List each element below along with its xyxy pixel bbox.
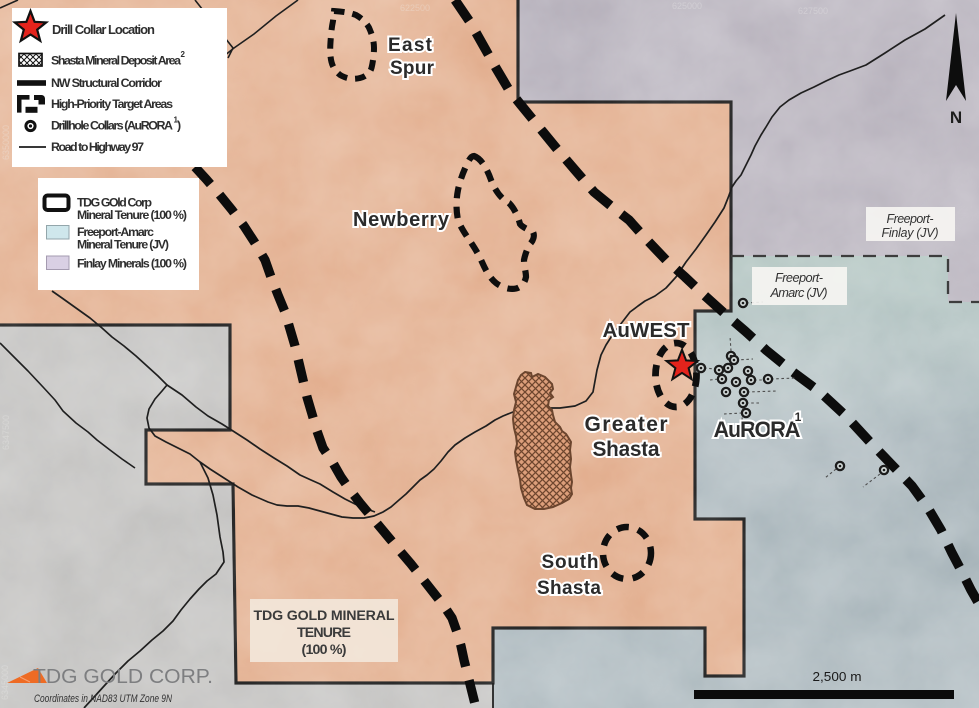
svg-text:Freeport-: Freeport-: [887, 212, 934, 226]
svg-text:Mineral Tenure (JV): Mineral Tenure (JV): [77, 238, 169, 252]
svg-text:2: 2: [181, 50, 186, 59]
svg-text:AuRORA: AuRORA: [714, 417, 801, 442]
svg-text:Finlay Minerals (100 %): Finlay Minerals (100 %): [77, 257, 187, 271]
svg-text:AuWEST: AuWEST: [603, 319, 690, 342]
svg-text:Mineral Tenure (100 %): Mineral Tenure (100 %): [77, 208, 187, 222]
svg-text:): ): [177, 119, 181, 133]
svg-text:6347500: 6347500: [1, 415, 11, 450]
svg-text:2,500 m: 2,500 m: [813, 670, 862, 684]
svg-text:6350000: 6350000: [1, 125, 11, 160]
svg-text:1: 1: [795, 410, 802, 424]
svg-text:627500: 627500: [798, 6, 828, 16]
svg-text:Greater: Greater: [585, 413, 668, 436]
svg-text:South: South: [542, 552, 599, 573]
svg-text:NW Structural Corridor: NW Structural Corridor: [51, 76, 162, 90]
svg-text:Freeport-: Freeport-: [775, 270, 823, 285]
svg-text:Finlay (JV): Finlay (JV): [882, 226, 939, 240]
svg-text:Coordinates in NAD83 UTM Zone: Coordinates in NAD83 UTM Zone 9N: [34, 693, 172, 705]
svg-text:TDG GOLD MINERAL: TDG GOLD MINERAL: [254, 608, 395, 624]
svg-text:Amarc (JV): Amarc (JV): [770, 285, 828, 300]
svg-text:622500: 622500: [400, 3, 430, 13]
svg-text:High-Priority Target Areas: High-Priority Target Areas: [51, 97, 173, 111]
svg-text:Shasta: Shasta: [593, 438, 660, 461]
svg-text:Drill Collar Location: Drill Collar Location: [52, 22, 155, 37]
svg-text:(100 %): (100 %): [302, 642, 347, 658]
svg-text:Shasta Mineral Deposit Area: Shasta Mineral Deposit Area: [51, 54, 181, 68]
svg-text:N: N: [950, 108, 962, 127]
svg-text:Road to Highway 97: Road to Highway 97: [51, 140, 144, 154]
svg-text:Shasta: Shasta: [537, 578, 601, 599]
svg-text:Spur: Spur: [390, 58, 435, 79]
svg-text:TDG GOLD CORP.: TDG GOLD CORP.: [33, 665, 213, 688]
svg-text:Drillhole Collars (AuRORA: Drillhole Collars (AuRORA: [51, 119, 173, 133]
svg-text:TENURE: TENURE: [297, 625, 351, 641]
svg-text:East: East: [388, 35, 433, 56]
svg-text:625000: 625000: [672, 1, 702, 11]
svg-text:Newberry: Newberry: [353, 209, 450, 231]
